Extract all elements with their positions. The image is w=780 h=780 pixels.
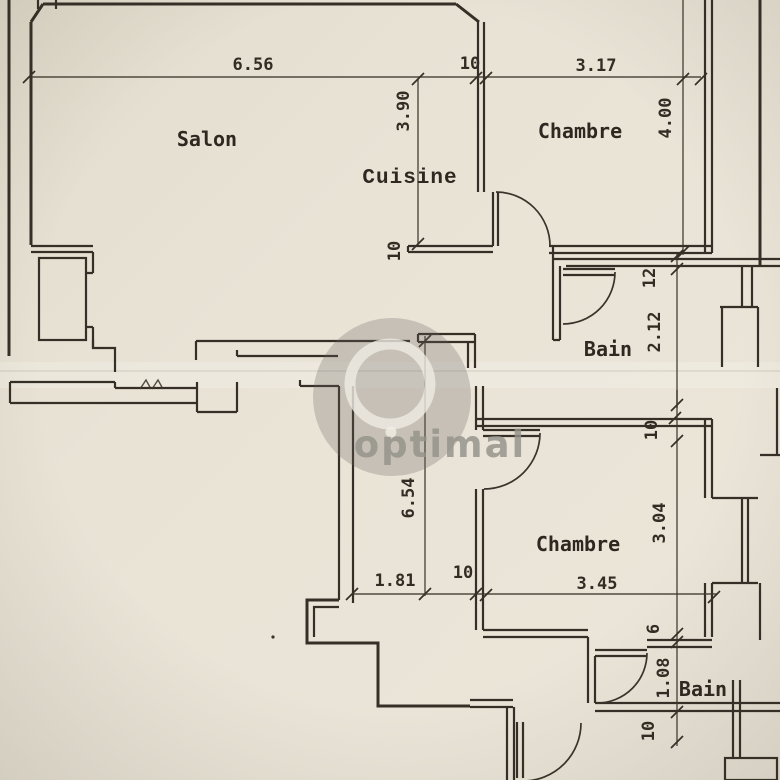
dim-chambre-top-width: 3.17 (576, 56, 617, 76)
dim-wall-lower: 10 (453, 563, 473, 583)
dim-cuisine-depth: 3.90 (394, 91, 414, 132)
dim-hall-wall: 10 (385, 241, 405, 261)
dim-chambre-bottom-width: 3.45 (577, 574, 618, 594)
room-label-cuisine: Cuisine (362, 167, 457, 190)
dim-corridor-depth: 6.54 (399, 478, 419, 519)
dim-wall-top: 10 (460, 54, 480, 74)
dim-wall-bottom: 10 (639, 721, 659, 741)
dim-bain-bottom-depth: 1.08 (654, 658, 674, 699)
dim-corridor-width: 1.81 (375, 571, 416, 591)
room-label-salon: Salon (177, 127, 237, 151)
floorplan-drawing: Salon Cuisine Chambre Bain Chambre Bain … (0, 0, 780, 780)
dim-bain-top-depth: 2.12 (645, 312, 665, 353)
dim-wall-bain-bottom: 6 (644, 624, 664, 634)
dim-chambre-top-depth: 4.00 (656, 98, 676, 139)
floorplan-scan: Salon Cuisine Chambre Bain Chambre Bain … (0, 0, 780, 780)
dim-salon-width: 6.56 (233, 55, 274, 75)
dim-wall-chambre-bottom: 10 (642, 420, 662, 440)
watermark-text: optimal (354, 423, 526, 466)
dim-wall-mid: 12 (640, 268, 660, 288)
room-label-chambre-top: Chambre (538, 119, 622, 143)
dim-chambre-bottom-depth: 3.04 (650, 503, 670, 544)
room-label-chambre-bottom: Chambre (536, 532, 620, 556)
room-label-bain-top: Bain (584, 337, 632, 361)
room-label-bain-bottom: Bain (679, 677, 727, 701)
